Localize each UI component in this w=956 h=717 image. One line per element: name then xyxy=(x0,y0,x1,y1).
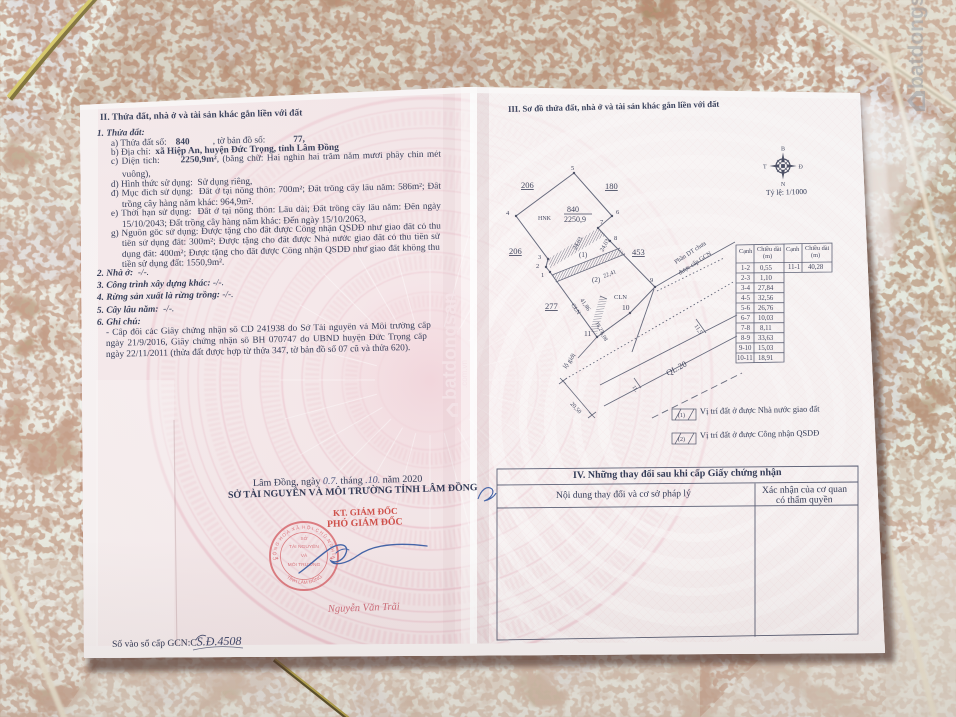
svg-text:5-6: 5-6 xyxy=(741,305,751,312)
svg-text:Đ: Đ xyxy=(799,164,804,170)
svg-text:6-7: 6-7 xyxy=(741,315,751,322)
svg-text:Chiều dài: Chiều dài xyxy=(805,245,830,252)
svg-text:(m): (m) xyxy=(763,253,772,260)
svg-text:18,91: 18,91 xyxy=(758,355,773,362)
svg-text:N: N xyxy=(781,182,786,188)
svg-text:10: 10 xyxy=(622,303,630,312)
svg-text:11-1: 11-1 xyxy=(788,264,800,271)
svg-text:15,03: 15,03 xyxy=(758,345,774,352)
svg-text:1,10: 1,10 xyxy=(760,275,772,282)
svg-text:HNK: HNK xyxy=(538,216,552,222)
svg-text:11: 11 xyxy=(584,329,591,338)
svg-text:9: 9 xyxy=(650,277,653,284)
svg-text:(2): (2) xyxy=(678,436,685,443)
svg-text:0,55: 0,55 xyxy=(760,265,772,272)
svg-text:SỞ: SỞ xyxy=(300,535,307,541)
svg-text:VÀ: VÀ xyxy=(301,552,308,559)
svg-text:batdongsan: batdongsan xyxy=(440,292,461,400)
svg-text:Chiều dài: Chiều dài xyxy=(757,246,782,253)
svg-text:CLN: CLN xyxy=(569,303,581,317)
svg-text:(1): (1) xyxy=(579,251,588,259)
svg-text:T: T xyxy=(763,164,767,170)
svg-text:840: 840 xyxy=(567,205,579,214)
svg-text:26,76: 26,76 xyxy=(758,305,774,312)
svg-text:Cạnh: Cạnh xyxy=(739,248,753,255)
svg-text:TÀI NGUYÊN: TÀI NGUYÊN xyxy=(289,542,319,550)
svg-text:4-5: 4-5 xyxy=(741,295,751,302)
svg-text:10-11: 10-11 xyxy=(737,355,753,362)
svg-text:22,41: 22,41 xyxy=(603,269,618,280)
svg-text:CLN: CLN xyxy=(614,294,627,301)
svg-text:10,03: 10,03 xyxy=(758,315,774,322)
svg-text:206: 206 xyxy=(509,246,522,256)
svg-text:11,5: 11,5 xyxy=(692,324,703,336)
svg-text:.com.vn: .com.vn xyxy=(460,360,469,388)
svg-text:20,50: 20,50 xyxy=(569,401,582,415)
svg-text:33,63: 33,63 xyxy=(758,335,774,342)
svg-text:Cạnh: Cạnh xyxy=(786,246,800,253)
svg-text:5: 5 xyxy=(571,165,574,172)
svg-text:6: 6 xyxy=(616,209,620,216)
svg-text:3-4: 3-4 xyxy=(741,285,751,292)
svg-text:40,28: 40,28 xyxy=(808,264,824,271)
svg-text:(m): (m) xyxy=(811,252,820,259)
svg-text:24,03: 24,03 xyxy=(599,238,611,253)
svg-text:206: 206 xyxy=(521,180,534,190)
svg-text:7: 7 xyxy=(600,219,604,226)
svg-text:2-3: 2-3 xyxy=(741,275,751,282)
svg-text:2: 2 xyxy=(536,263,539,270)
svg-text:1: 1 xyxy=(541,272,544,279)
svg-text:8,11: 8,11 xyxy=(760,325,772,332)
svg-text:8-9: 8-9 xyxy=(741,335,751,342)
svg-text:2250,9: 2250,9 xyxy=(564,215,586,224)
svg-text:4: 4 xyxy=(506,210,510,217)
svg-text:7-8: 7-8 xyxy=(741,325,751,332)
svg-text:MÔI TRƯỜNG: MÔI TRƯỜNG xyxy=(288,561,321,568)
svg-text:27,84: 27,84 xyxy=(758,285,774,292)
svg-text:8: 8 xyxy=(614,235,617,242)
svg-text:(2): (2) xyxy=(592,276,601,284)
svg-text:3: 3 xyxy=(538,254,541,261)
svg-text:6,08: 6,08 xyxy=(598,331,608,343)
svg-text:(1): (1) xyxy=(678,412,685,419)
svg-text:1L: 1L xyxy=(630,385,639,394)
svg-text:9-10: 9-10 xyxy=(739,345,752,352)
svg-text:batdongsan: batdongsan xyxy=(905,0,928,89)
svg-text:lộ giới: lộ giới xyxy=(562,352,578,370)
svg-text:QL.20: QL.20 xyxy=(664,359,688,378)
svg-text:32,56: 32,56 xyxy=(758,295,774,302)
svg-text:277: 277 xyxy=(545,301,558,311)
svg-text:180: 180 xyxy=(605,181,618,191)
svg-text:453: 453 xyxy=(632,247,645,257)
svg-text:1-2: 1-2 xyxy=(741,265,751,272)
svg-text:B: B xyxy=(781,147,785,153)
